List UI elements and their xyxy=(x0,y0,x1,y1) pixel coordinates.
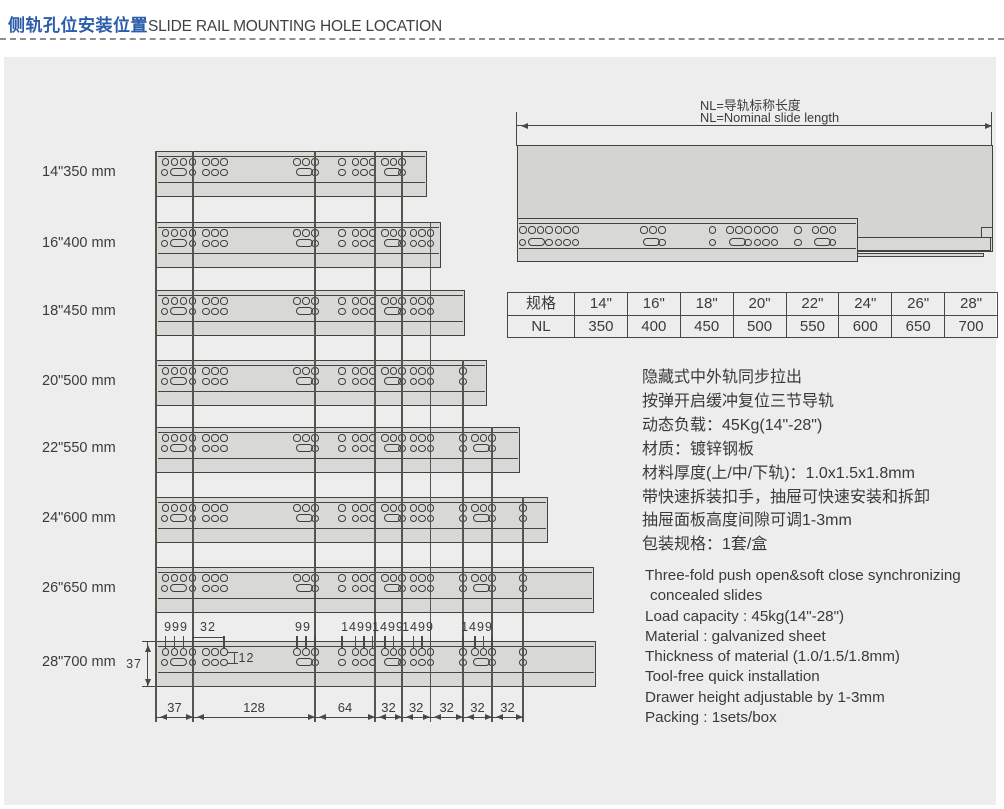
spec-line-en: Load capacity : 45kg(14"-28") xyxy=(645,607,961,627)
rail-length-label: 26"650 mm xyxy=(42,580,116,596)
mounting-hole-icon xyxy=(202,229,209,236)
bottom-dim-label: 128 xyxy=(234,700,274,715)
mounting-hole-icon xyxy=(360,659,367,666)
mounting-slot-icon xyxy=(384,239,401,247)
mounting-hole-icon xyxy=(352,229,359,236)
mounting-hole-icon xyxy=(171,504,178,511)
mounting-hole-icon xyxy=(410,367,417,374)
rail-length-label: 14"350 mm xyxy=(42,164,116,180)
mounting-hole-icon xyxy=(220,574,227,581)
dim-arrow-left-icon xyxy=(431,714,441,720)
mounting-hole-icon xyxy=(338,378,345,385)
mounting-hole-icon xyxy=(410,240,417,247)
mounting-hole-icon xyxy=(555,239,562,246)
mounting-hole-icon xyxy=(161,240,168,247)
mounting-slot-icon xyxy=(170,514,187,522)
mounting-hole-icon xyxy=(418,585,425,592)
mounting-hole-icon xyxy=(410,574,417,581)
spec-line-zh: 隐藏式中外轨同步拉出 xyxy=(642,366,930,390)
mounting-hole-icon xyxy=(162,229,169,236)
mounting-hole-icon xyxy=(211,158,218,165)
mounting-hole-icon xyxy=(338,574,345,581)
size-table-spec-cell: 14" xyxy=(574,293,627,315)
mounting-hole-icon xyxy=(410,659,417,666)
dim-leader-line xyxy=(314,636,315,649)
mounting-hole-icon xyxy=(352,659,359,666)
mounting-hole-icon xyxy=(211,297,218,304)
spec-line-zh: 包装规格：1套/盒 xyxy=(642,533,930,557)
mounting-hole-icon xyxy=(202,434,209,441)
dim-leader-line xyxy=(305,636,306,649)
mounting-hole-icon xyxy=(162,504,169,511)
mounting-hole-icon xyxy=(360,308,367,315)
size-table-nl-cell: 550 xyxy=(786,315,839,338)
mounting-hole-icon xyxy=(735,226,742,233)
mounting-hole-icon xyxy=(381,574,388,581)
size-table-spec-cell: 22" xyxy=(786,293,839,315)
mounting-hole-icon xyxy=(771,239,778,246)
spec-line-en: Tool-free quick installation xyxy=(645,667,961,687)
mounting-hole-icon xyxy=(352,240,359,247)
mounting-hole-icon xyxy=(202,169,209,176)
page: 侧轨孔位安装位置SLIDE RAIL MOUNTING HOLE LOCATIO… xyxy=(0,0,1004,809)
mounting-hole-icon xyxy=(410,515,417,522)
rear-hook-tab xyxy=(981,227,993,238)
mounting-hole-icon xyxy=(171,367,178,374)
mounting-hole-icon xyxy=(180,158,187,165)
spec-line-zh: 材料厚度(上/中/下轨)：1.0x1.5x1.8mm xyxy=(642,462,930,486)
dim-leader-line xyxy=(384,636,385,649)
mounting-hole-icon xyxy=(390,297,397,304)
mounting-slot-icon xyxy=(528,238,545,246)
mounting-hole-icon xyxy=(519,239,526,246)
page-title-english: SLIDE RAIL MOUNTING HOLE LOCATION xyxy=(148,18,442,36)
mounting-hole-icon xyxy=(390,434,397,441)
row-gap-line xyxy=(234,652,235,664)
mounting-hole-icon xyxy=(211,378,218,385)
mounting-hole-icon xyxy=(410,308,417,315)
row-gap-tick xyxy=(227,663,238,664)
mounting-hole-icon xyxy=(220,240,227,247)
rail-divider-line xyxy=(158,672,594,673)
mounting-hole-icon xyxy=(418,515,425,522)
mounting-hole-icon xyxy=(537,226,544,233)
mounting-hole-icon xyxy=(338,240,345,247)
mounting-slot-icon xyxy=(384,444,401,452)
mounting-slot-icon xyxy=(384,514,401,522)
mounting-hole-icon xyxy=(572,239,579,246)
mounting-hole-icon xyxy=(180,367,187,374)
spec-line-en: Thickness of material (1.0/1.5/1.8mm) xyxy=(645,647,961,667)
dim-leader-line xyxy=(355,636,356,649)
mounting-hole-icon xyxy=(161,585,168,592)
mounting-hole-icon xyxy=(302,504,309,511)
mounting-hole-icon xyxy=(338,169,345,176)
mounting-slot-icon xyxy=(729,238,746,246)
spec-list-chinese: 隐藏式中外轨同步拉出按弹开启缓冲复位三节导轨动态负载：45Kg(14"-28")… xyxy=(642,366,930,557)
size-table-nl-cell: 450 xyxy=(680,315,733,338)
nl-dim-arrow-right-icon xyxy=(985,123,995,129)
mounting-hole-icon xyxy=(352,378,359,385)
size-table-spec-cell: 18" xyxy=(680,293,733,315)
bottom-dim-label: 32 xyxy=(488,700,528,715)
mounting-hole-icon xyxy=(360,158,367,165)
rail-length-label: 24"600 mm xyxy=(42,510,116,526)
mounting-hole-icon xyxy=(381,648,388,655)
mounting-slot-icon xyxy=(296,377,313,385)
mounting-hole-icon xyxy=(410,378,417,385)
mounting-hole-icon xyxy=(338,445,345,452)
spec-line-en: Material : galvanized sheet xyxy=(645,627,961,647)
rail-top-strip-line xyxy=(158,227,439,228)
mounting-hole-icon xyxy=(302,229,309,236)
mounting-hole-icon xyxy=(528,226,535,233)
mounting-hole-icon xyxy=(794,239,801,246)
mounting-hole-icon xyxy=(360,515,367,522)
mounting-hole-icon xyxy=(390,574,397,581)
row-gap-tick xyxy=(227,652,238,653)
rail-divider-line xyxy=(158,321,463,322)
mounting-hole-icon xyxy=(180,229,187,236)
mounting-slot-icon xyxy=(473,514,490,522)
mounting-hole-icon xyxy=(302,367,309,374)
mounting-hole-icon xyxy=(471,574,478,581)
mounting-hole-icon xyxy=(563,239,570,246)
hole-pitch-dim-label: 32 xyxy=(186,620,230,634)
mounting-hole-icon xyxy=(161,445,168,452)
mounting-hole-icon xyxy=(754,239,761,246)
mounting-hole-icon xyxy=(202,158,209,165)
dim-leader-line xyxy=(474,636,475,649)
mounting-hole-icon xyxy=(211,434,218,441)
hole-pitch-dim-label: 1499 xyxy=(455,620,499,634)
mounting-hole-icon xyxy=(161,308,168,315)
mounting-slot-icon xyxy=(384,168,401,176)
mounting-hole-icon xyxy=(360,585,367,592)
mounting-hole-icon xyxy=(709,239,716,246)
mounting-hole-icon xyxy=(202,308,209,315)
mounting-hole-icon xyxy=(211,515,218,522)
mounting-hole-icon xyxy=(480,648,487,655)
mounting-hole-icon xyxy=(180,297,187,304)
mounting-hole-icon xyxy=(161,378,168,385)
mounting-slot-icon xyxy=(473,584,490,592)
mounting-slot-icon xyxy=(473,658,490,666)
dim-leader-line xyxy=(165,636,166,649)
mounting-hole-icon xyxy=(211,504,218,511)
mounting-hole-icon xyxy=(220,585,227,592)
mounting-hole-icon xyxy=(202,574,209,581)
mounting-hole-icon xyxy=(418,378,425,385)
rail-height-arrow-up-icon xyxy=(145,642,151,652)
mounting-hole-icon xyxy=(360,229,367,236)
mounting-hole-icon xyxy=(352,367,359,374)
mounting-hole-icon xyxy=(418,659,425,666)
spec-line-en: Packing : 1sets/box xyxy=(645,708,961,728)
mounting-hole-icon xyxy=(171,297,178,304)
mounting-slot-icon xyxy=(296,658,313,666)
mounting-hole-icon xyxy=(202,378,209,385)
dim-leader-line xyxy=(483,636,484,649)
mounting-hole-icon xyxy=(471,504,478,511)
spec-line-en: Three-fold push open&soft close synchron… xyxy=(645,566,961,586)
rail-length-label: 18"450 mm xyxy=(42,303,116,319)
mounting-hole-icon xyxy=(220,515,227,522)
spec-line-zh: 材质：镀锌钢板 xyxy=(642,438,930,462)
mounting-hole-icon xyxy=(302,158,309,165)
mounting-hole-icon xyxy=(302,648,309,655)
dim-bracket-32 xyxy=(193,637,225,638)
mounting-hole-icon xyxy=(352,574,359,581)
mounting-hole-icon xyxy=(338,297,345,304)
mounting-hole-icon xyxy=(471,434,478,441)
mounting-slot-icon xyxy=(296,168,313,176)
mounting-hole-icon xyxy=(410,445,417,452)
mounting-hole-icon xyxy=(171,574,178,581)
mounting-hole-icon xyxy=(162,574,169,581)
mounting-hole-icon xyxy=(519,226,526,233)
dim-arrow-left-icon xyxy=(493,714,503,720)
mounting-hole-icon xyxy=(293,158,300,165)
mounting-hole-icon xyxy=(171,648,178,655)
size-table-nl-cell: 500 xyxy=(733,315,786,338)
size-table-spec-cell: 规格 xyxy=(508,293,574,315)
mounting-hole-icon xyxy=(820,226,827,233)
mounting-hole-icon xyxy=(220,229,227,236)
dim-arrow-left-icon xyxy=(316,714,326,720)
mounting-hole-icon xyxy=(211,308,218,315)
rail-divider-line xyxy=(158,458,518,459)
dim-arrow-left-icon xyxy=(194,714,204,720)
mounting-hole-icon xyxy=(640,226,647,233)
mounting-hole-icon xyxy=(220,504,227,511)
hole-alignment-line xyxy=(491,427,492,722)
mounting-hole-icon xyxy=(418,648,425,655)
mounting-hole-icon xyxy=(555,226,562,233)
nl-dim-arrow-left-icon xyxy=(518,123,528,129)
rail-top-strip-line xyxy=(158,365,485,366)
mounting-hole-icon xyxy=(480,574,487,581)
mounting-slot-icon xyxy=(296,444,313,452)
mounting-slot-icon xyxy=(170,658,187,666)
rail-length-label: 22"550 mm xyxy=(42,440,116,456)
row-gap-dim-label: 12 xyxy=(239,651,255,665)
rail-divider-line xyxy=(158,528,546,529)
mounting-hole-icon xyxy=(545,226,552,233)
mounting-hole-icon xyxy=(352,308,359,315)
mounting-slot-icon xyxy=(384,377,401,385)
mounting-slot-icon xyxy=(384,307,401,315)
mounting-hole-icon xyxy=(360,297,367,304)
mounting-hole-icon xyxy=(352,648,359,655)
mounting-hole-icon xyxy=(352,515,359,522)
size-table-nl-cell: 700 xyxy=(944,315,997,338)
mounting-hole-icon xyxy=(180,648,187,655)
mounting-hole-icon xyxy=(762,226,769,233)
mounting-hole-icon xyxy=(480,504,487,511)
mounting-hole-icon xyxy=(171,158,178,165)
mounting-hole-icon xyxy=(410,504,417,511)
mounting-hole-icon xyxy=(709,226,716,233)
mounting-slot-icon xyxy=(170,377,187,385)
mounting-hole-icon xyxy=(360,378,367,385)
mounting-hole-icon xyxy=(338,367,345,374)
spec-line-zh: 带快速拆装扣手，抽屉可快速安装和拆卸 xyxy=(642,486,930,510)
mounting-hole-icon xyxy=(211,240,218,247)
mounting-hole-icon xyxy=(302,574,309,581)
hole-pitch-dim-label: 99 xyxy=(281,620,325,634)
spec-line-zh: 动态负载：45Kg(14"-28") xyxy=(642,414,930,438)
size-table-spec-cell: 20" xyxy=(733,293,786,315)
mounting-hole-icon xyxy=(360,504,367,511)
mounting-hole-icon xyxy=(352,297,359,304)
nl-extension-line-right xyxy=(991,112,992,146)
mounting-hole-icon xyxy=(410,229,417,236)
mounting-hole-icon xyxy=(410,648,417,655)
mounting-hole-icon xyxy=(171,434,178,441)
mounting-slot-icon xyxy=(296,307,313,315)
mounting-hole-icon xyxy=(338,659,345,666)
hole-alignment-line xyxy=(155,151,156,722)
mounting-slot-icon xyxy=(296,514,313,522)
spec-line-en: concealed slides xyxy=(645,586,961,606)
dim-leader-line xyxy=(174,636,175,649)
mounting-hole-icon xyxy=(220,158,227,165)
mounting-hole-icon xyxy=(338,648,345,655)
mounting-hole-icon xyxy=(161,515,168,522)
mounting-slot-icon xyxy=(473,444,490,452)
mounting-hole-icon xyxy=(572,226,579,233)
mounting-hole-icon xyxy=(161,659,168,666)
mounting-hole-icon xyxy=(302,434,309,441)
mounting-hole-icon xyxy=(202,240,209,247)
mounting-hole-icon xyxy=(162,648,169,655)
mounting-hole-icon xyxy=(338,434,345,441)
header-divider-dashed-line xyxy=(0,38,1004,40)
mounting-hole-icon xyxy=(410,297,417,304)
mounting-slot-icon xyxy=(384,658,401,666)
mounting-hole-icon xyxy=(338,158,345,165)
mounting-slot-icon xyxy=(296,584,313,592)
mounting-hole-icon xyxy=(180,504,187,511)
size-table-spec-cell: 24" xyxy=(838,293,891,315)
dim-leader-line xyxy=(430,636,431,649)
hole-alignment-line xyxy=(374,151,375,722)
mounting-hole-icon xyxy=(211,367,218,374)
mounting-hole-icon xyxy=(418,229,425,236)
dim-arrow-left-icon xyxy=(157,714,167,720)
mounting-hole-icon xyxy=(360,240,367,247)
mounting-hole-icon xyxy=(545,239,552,246)
mounting-hole-icon xyxy=(381,367,388,374)
mounting-slot-icon xyxy=(296,239,313,247)
mounting-hole-icon xyxy=(293,434,300,441)
mounting-hole-icon xyxy=(381,504,388,511)
mounting-hole-icon xyxy=(418,240,425,247)
dim-leader-line xyxy=(363,636,364,649)
mounting-hole-icon xyxy=(390,229,397,236)
mounting-hole-icon xyxy=(352,158,359,165)
mounting-hole-icon xyxy=(211,659,218,666)
dim-arrow-left-icon xyxy=(376,714,386,720)
rail-length-label: 20"500 mm xyxy=(42,373,116,389)
mounting-hole-icon xyxy=(390,158,397,165)
mounting-hole-icon xyxy=(293,574,300,581)
mounting-hole-icon xyxy=(293,648,300,655)
mounting-hole-icon xyxy=(794,226,801,233)
mounting-hole-icon xyxy=(754,226,761,233)
size-table-nl-cell: 400 xyxy=(627,315,680,338)
rail-divider-line xyxy=(158,253,439,254)
middle-member-bar xyxy=(856,237,991,251)
mounting-hole-icon xyxy=(649,226,656,233)
dim-leader-line xyxy=(401,636,402,649)
mounting-hole-icon xyxy=(410,585,417,592)
rail-height-arrow-down-icon xyxy=(145,679,151,689)
hole-alignment-line xyxy=(462,360,463,722)
mounting-hole-icon xyxy=(563,226,570,233)
size-table-nl-cell: 650 xyxy=(891,315,944,338)
mounting-hole-icon xyxy=(161,169,168,176)
mounting-hole-icon xyxy=(220,367,227,374)
page-title: 侧轨孔位安装位置SLIDE RAIL MOUNTING HOLE LOCATIO… xyxy=(8,11,442,36)
mounting-hole-icon xyxy=(390,504,397,511)
mounting-slot-icon xyxy=(170,307,187,315)
mounting-hole-icon xyxy=(352,434,359,441)
mounting-hole-icon xyxy=(293,367,300,374)
mounting-hole-icon xyxy=(171,229,178,236)
mounting-hole-icon xyxy=(744,226,751,233)
mounting-hole-icon xyxy=(418,367,425,374)
mounting-hole-icon xyxy=(162,297,169,304)
mounting-hole-icon xyxy=(293,297,300,304)
rail-top-strip-line xyxy=(158,295,463,296)
nl-dimension-line xyxy=(517,125,992,126)
mounting-hole-icon xyxy=(338,308,345,315)
nl-extension-line-left xyxy=(516,112,517,146)
mounting-hole-icon xyxy=(302,297,309,304)
mounting-hole-icon xyxy=(202,585,209,592)
dim-leader-line xyxy=(413,636,414,649)
mounting-hole-icon xyxy=(202,515,209,522)
mounting-hole-icon xyxy=(220,445,227,452)
mounting-hole-icon xyxy=(162,434,169,441)
dim-leader-line xyxy=(341,636,342,649)
dim-leader-line xyxy=(393,636,394,649)
mounting-hole-icon xyxy=(202,648,209,655)
mounting-hole-icon xyxy=(480,434,487,441)
hole-alignment-line xyxy=(522,497,523,722)
mounting-hole-icon xyxy=(360,574,367,581)
size-table: 规格14"16"18"20"22"24"26"28"NL350400450500… xyxy=(507,292,998,338)
mounting-hole-icon xyxy=(293,229,300,236)
mounting-hole-icon xyxy=(352,504,359,511)
rail-top-strip-line xyxy=(158,432,518,433)
size-table-spec-cell: 26" xyxy=(891,293,944,315)
dim-arrow-left-icon xyxy=(403,714,413,720)
mounting-hole-icon xyxy=(381,434,388,441)
mounting-hole-icon xyxy=(360,648,367,655)
rail-top-strip-line xyxy=(158,156,425,157)
mounting-hole-icon xyxy=(220,169,227,176)
mounting-hole-icon xyxy=(202,297,209,304)
dim-leader-line xyxy=(462,636,463,649)
mounting-hole-icon xyxy=(211,574,218,581)
spec-line-zh: 抽屉面板高度间隙可调1-3mm xyxy=(642,509,930,533)
mounting-hole-icon xyxy=(381,158,388,165)
mounting-hole-icon xyxy=(211,585,218,592)
mounting-hole-icon xyxy=(220,378,227,385)
